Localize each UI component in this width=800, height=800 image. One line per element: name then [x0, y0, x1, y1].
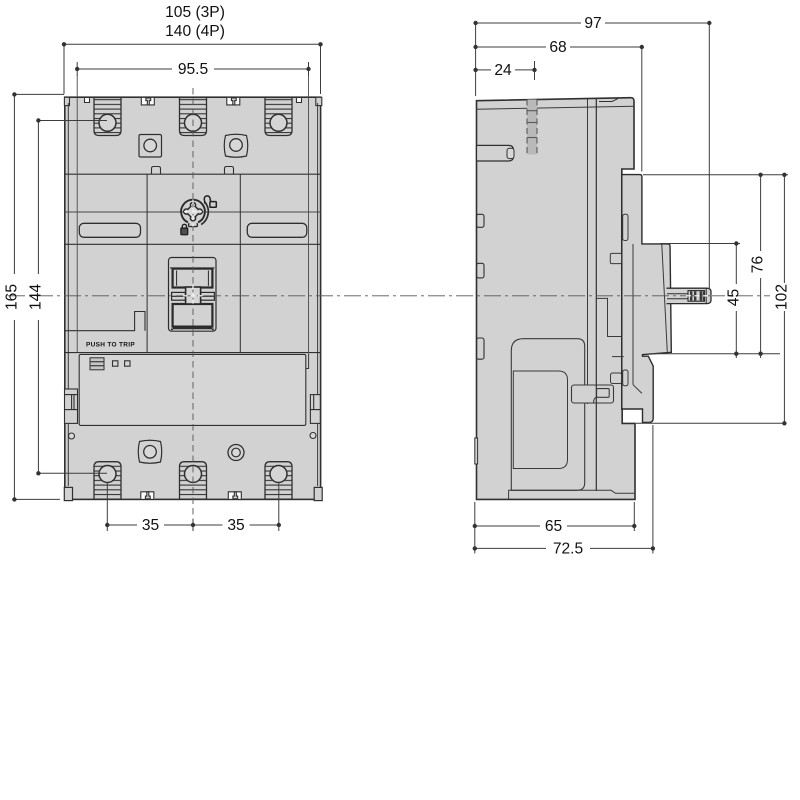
svg-text:65: 65	[545, 518, 563, 535]
svg-text:140 (4P): 140 (4P)	[165, 23, 225, 40]
svg-text:95.5: 95.5	[178, 61, 209, 78]
svg-text:45: 45	[726, 289, 743, 307]
svg-text:97: 97	[584, 15, 601, 32]
svg-text:105 (3P): 105 (3P)	[165, 4, 225, 21]
svg-text:35: 35	[227, 517, 245, 534]
svg-text:144: 144	[28, 284, 45, 310]
svg-text:35: 35	[142, 517, 160, 534]
svg-text:76: 76	[750, 256, 767, 273]
svg-text:72.5: 72.5	[553, 541, 584, 558]
svg-text:102: 102	[774, 284, 791, 310]
svg-text:24: 24	[494, 62, 512, 79]
svg-text:PUSH TO TRIP: PUSH TO TRIP	[86, 342, 135, 349]
svg-text:165: 165	[4, 284, 21, 310]
svg-text:68: 68	[549, 39, 566, 56]
